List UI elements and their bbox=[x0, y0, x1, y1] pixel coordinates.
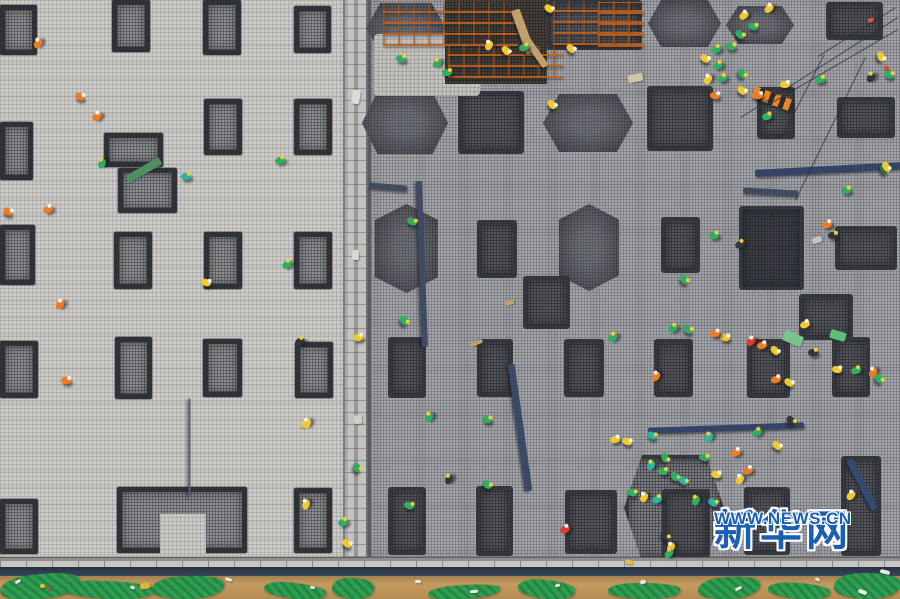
worker-helmet bbox=[717, 470, 722, 475]
steel-beam bbox=[188, 399, 190, 498]
debris bbox=[470, 590, 478, 594]
worker-helmet bbox=[838, 365, 843, 370]
column-footing bbox=[523, 276, 570, 329]
worker-helmet bbox=[67, 376, 71, 380]
column-footing bbox=[388, 487, 426, 555]
column-footing bbox=[837, 97, 895, 138]
worker bbox=[442, 69, 452, 76]
worker-helmet bbox=[615, 434, 620, 439]
column-footing bbox=[114, 232, 152, 289]
worker bbox=[828, 232, 838, 239]
column-footing bbox=[0, 499, 38, 554]
debris bbox=[47, 587, 51, 590]
worker-helmet bbox=[869, 366, 874, 371]
worker-helmet bbox=[705, 73, 710, 78]
worker-helmet bbox=[776, 374, 781, 379]
column-footing bbox=[747, 339, 790, 398]
watermark-url-text: WWW.NEWS.CN bbox=[714, 509, 852, 529]
worker-helmet bbox=[187, 172, 191, 176]
worker-helmet bbox=[485, 39, 490, 44]
column-footing bbox=[115, 337, 152, 399]
worker-helmet bbox=[714, 230, 719, 235]
worker-helmet bbox=[747, 464, 752, 469]
aerial-construction-site-photo: 新华网 WWW.NEWS.CN bbox=[0, 0, 900, 599]
worker-helmet bbox=[664, 467, 668, 471]
debris bbox=[354, 415, 363, 425]
worker-helmet bbox=[445, 473, 450, 478]
column-footing bbox=[294, 99, 332, 155]
worker-helmet bbox=[303, 417, 308, 422]
column-footing bbox=[294, 232, 332, 289]
column-footing bbox=[203, 0, 241, 55]
column-footing bbox=[294, 6, 331, 53]
green-tarp bbox=[608, 583, 680, 599]
debris bbox=[310, 586, 315, 590]
rebar-scaffold bbox=[383, 2, 518, 46]
column-footing bbox=[477, 220, 517, 278]
column-footing bbox=[0, 341, 38, 398]
column-footing bbox=[739, 206, 804, 290]
hex-footing bbox=[375, 204, 438, 293]
column-footing bbox=[565, 490, 617, 554]
formwork-divider-strip bbox=[343, 0, 368, 557]
column-footing bbox=[204, 99, 242, 155]
column-footing bbox=[476, 486, 513, 556]
worker-helmet bbox=[856, 365, 861, 370]
worker bbox=[396, 55, 406, 63]
column-footing bbox=[295, 342, 333, 398]
hex-footing bbox=[648, 0, 721, 47]
debris bbox=[352, 250, 359, 260]
worker-helmet bbox=[434, 57, 440, 63]
worker-helmet bbox=[524, 42, 529, 47]
worker-helmet bbox=[715, 328, 720, 333]
worker-helmet bbox=[827, 219, 832, 224]
worker bbox=[61, 377, 71, 384]
worker-helmet bbox=[667, 541, 672, 546]
worker-helmet bbox=[736, 473, 741, 478]
hex-footing bbox=[362, 92, 448, 154]
worker-helmet bbox=[732, 42, 737, 47]
worker-helmet bbox=[302, 498, 307, 503]
debris bbox=[40, 584, 45, 589]
worker-helmet bbox=[640, 491, 645, 496]
worker bbox=[753, 92, 763, 100]
hex-footing bbox=[726, 6, 794, 44]
worker-helmet bbox=[692, 494, 697, 499]
worker-helmet bbox=[648, 459, 654, 465]
worker-helmet bbox=[821, 75, 825, 79]
worker-helmet bbox=[726, 333, 731, 338]
worker-helmet bbox=[767, 111, 772, 116]
worker-helmet bbox=[653, 370, 659, 376]
worker-helmet bbox=[786, 80, 790, 84]
worker-helmet bbox=[759, 91, 763, 95]
worker-helmet bbox=[656, 493, 661, 498]
worker bbox=[658, 468, 668, 475]
column-footing bbox=[835, 226, 897, 270]
worker-helmet bbox=[359, 333, 363, 337]
worker-helmet bbox=[448, 68, 452, 72]
worker-helmet bbox=[426, 411, 431, 416]
column-footing bbox=[388, 337, 426, 398]
worker-helmet bbox=[846, 185, 851, 190]
concrete-patch bbox=[160, 514, 206, 554]
worker-helmet bbox=[488, 415, 493, 420]
column-footing bbox=[654, 339, 693, 397]
worker-helmet bbox=[706, 431, 711, 436]
column-footing bbox=[661, 217, 700, 273]
worker-helmet bbox=[834, 231, 838, 235]
column-footing bbox=[0, 122, 33, 180]
column-footing bbox=[458, 91, 524, 154]
worker-helmet bbox=[402, 54, 406, 58]
worker-helmet bbox=[868, 71, 874, 77]
worker bbox=[710, 92, 720, 100]
column-footing bbox=[112, 0, 150, 52]
column-footing bbox=[294, 488, 332, 553]
column-footing bbox=[564, 339, 604, 397]
debris bbox=[415, 580, 421, 583]
concrete-slab-left bbox=[0, 0, 343, 557]
worker-helmet bbox=[814, 348, 818, 352]
worker-helmet bbox=[98, 157, 103, 162]
column-footing bbox=[647, 86, 713, 151]
worker-helmet bbox=[762, 340, 767, 345]
column-footing bbox=[203, 339, 242, 397]
column-footing bbox=[0, 5, 37, 55]
worker-helmet bbox=[280, 155, 285, 160]
worker-helmet bbox=[716, 91, 720, 95]
green-tarp bbox=[834, 572, 900, 599]
column-footing bbox=[0, 225, 35, 285]
green-tarp bbox=[332, 578, 374, 599]
rebar-scaffold bbox=[598, 2, 643, 47]
worker-helmet bbox=[35, 37, 40, 42]
